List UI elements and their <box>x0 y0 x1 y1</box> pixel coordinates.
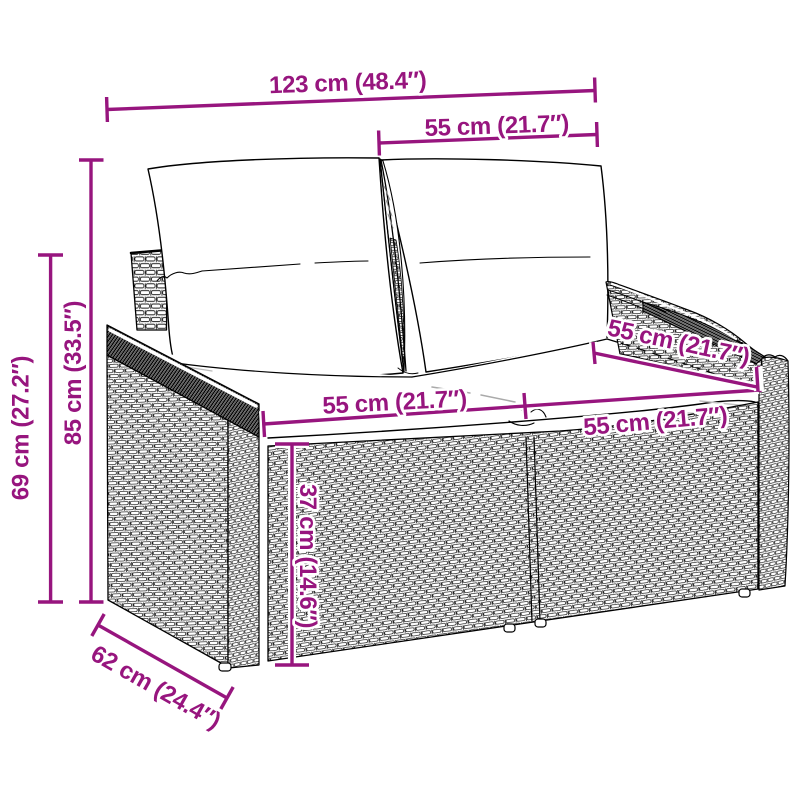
svg-text:123 cm (48.4″): 123 cm (48.4″) <box>269 67 427 99</box>
svg-text:85 cm (33.5″): 85 cm (33.5″) <box>60 301 87 445</box>
svg-text:69 cm (27.2″): 69 cm (27.2″) <box>8 356 35 500</box>
svg-text:37 cm (14.6″): 37 cm (14.6″) <box>294 484 321 628</box>
svg-text:55 cm (21.7″): 55 cm (21.7″) <box>424 110 569 142</box>
